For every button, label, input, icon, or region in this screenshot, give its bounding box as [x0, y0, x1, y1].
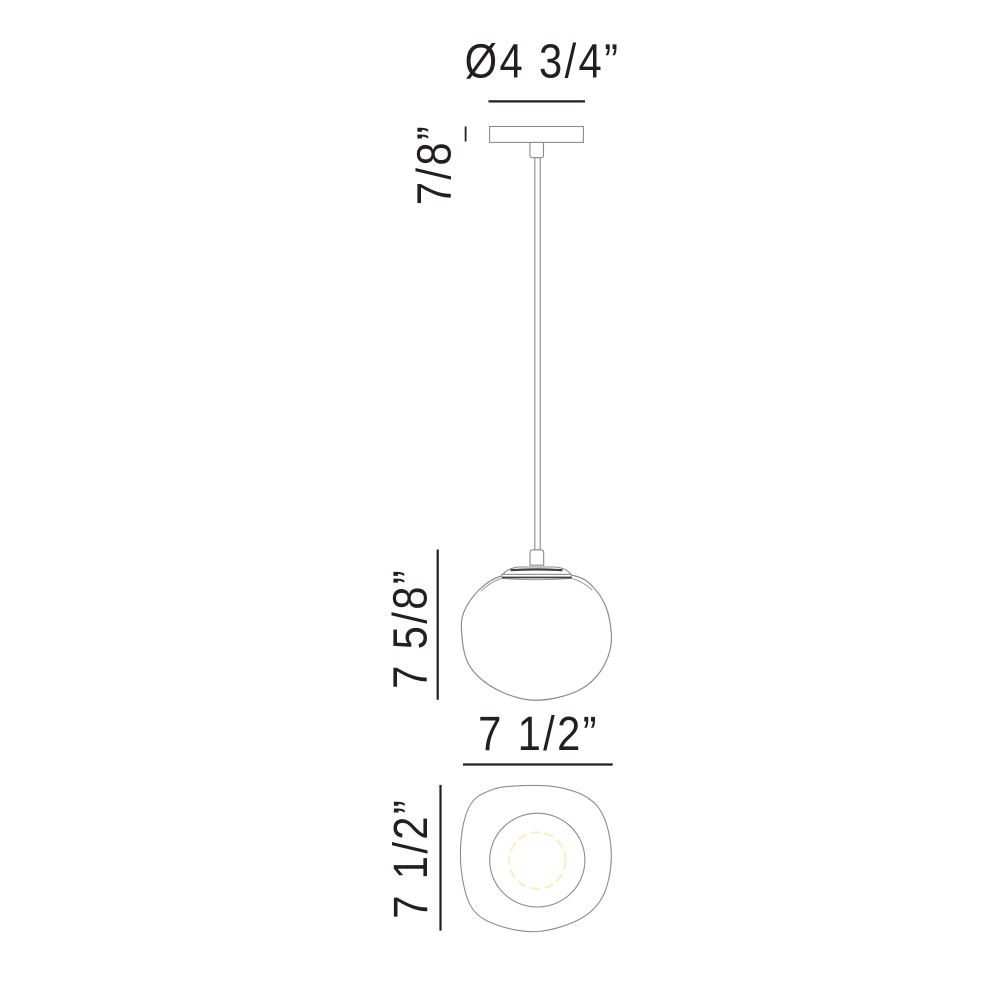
- svg-text:7 1/2”: 7 1/2”: [478, 706, 599, 760]
- svg-text:7 5/8”: 7 5/8”: [383, 568, 437, 689]
- svg-text:7 1/2”: 7 1/2”: [383, 798, 437, 919]
- svg-text:Ø4 3/4”: Ø4 3/4”: [465, 34, 621, 88]
- svg-text:7/8”: 7/8”: [407, 124, 461, 205]
